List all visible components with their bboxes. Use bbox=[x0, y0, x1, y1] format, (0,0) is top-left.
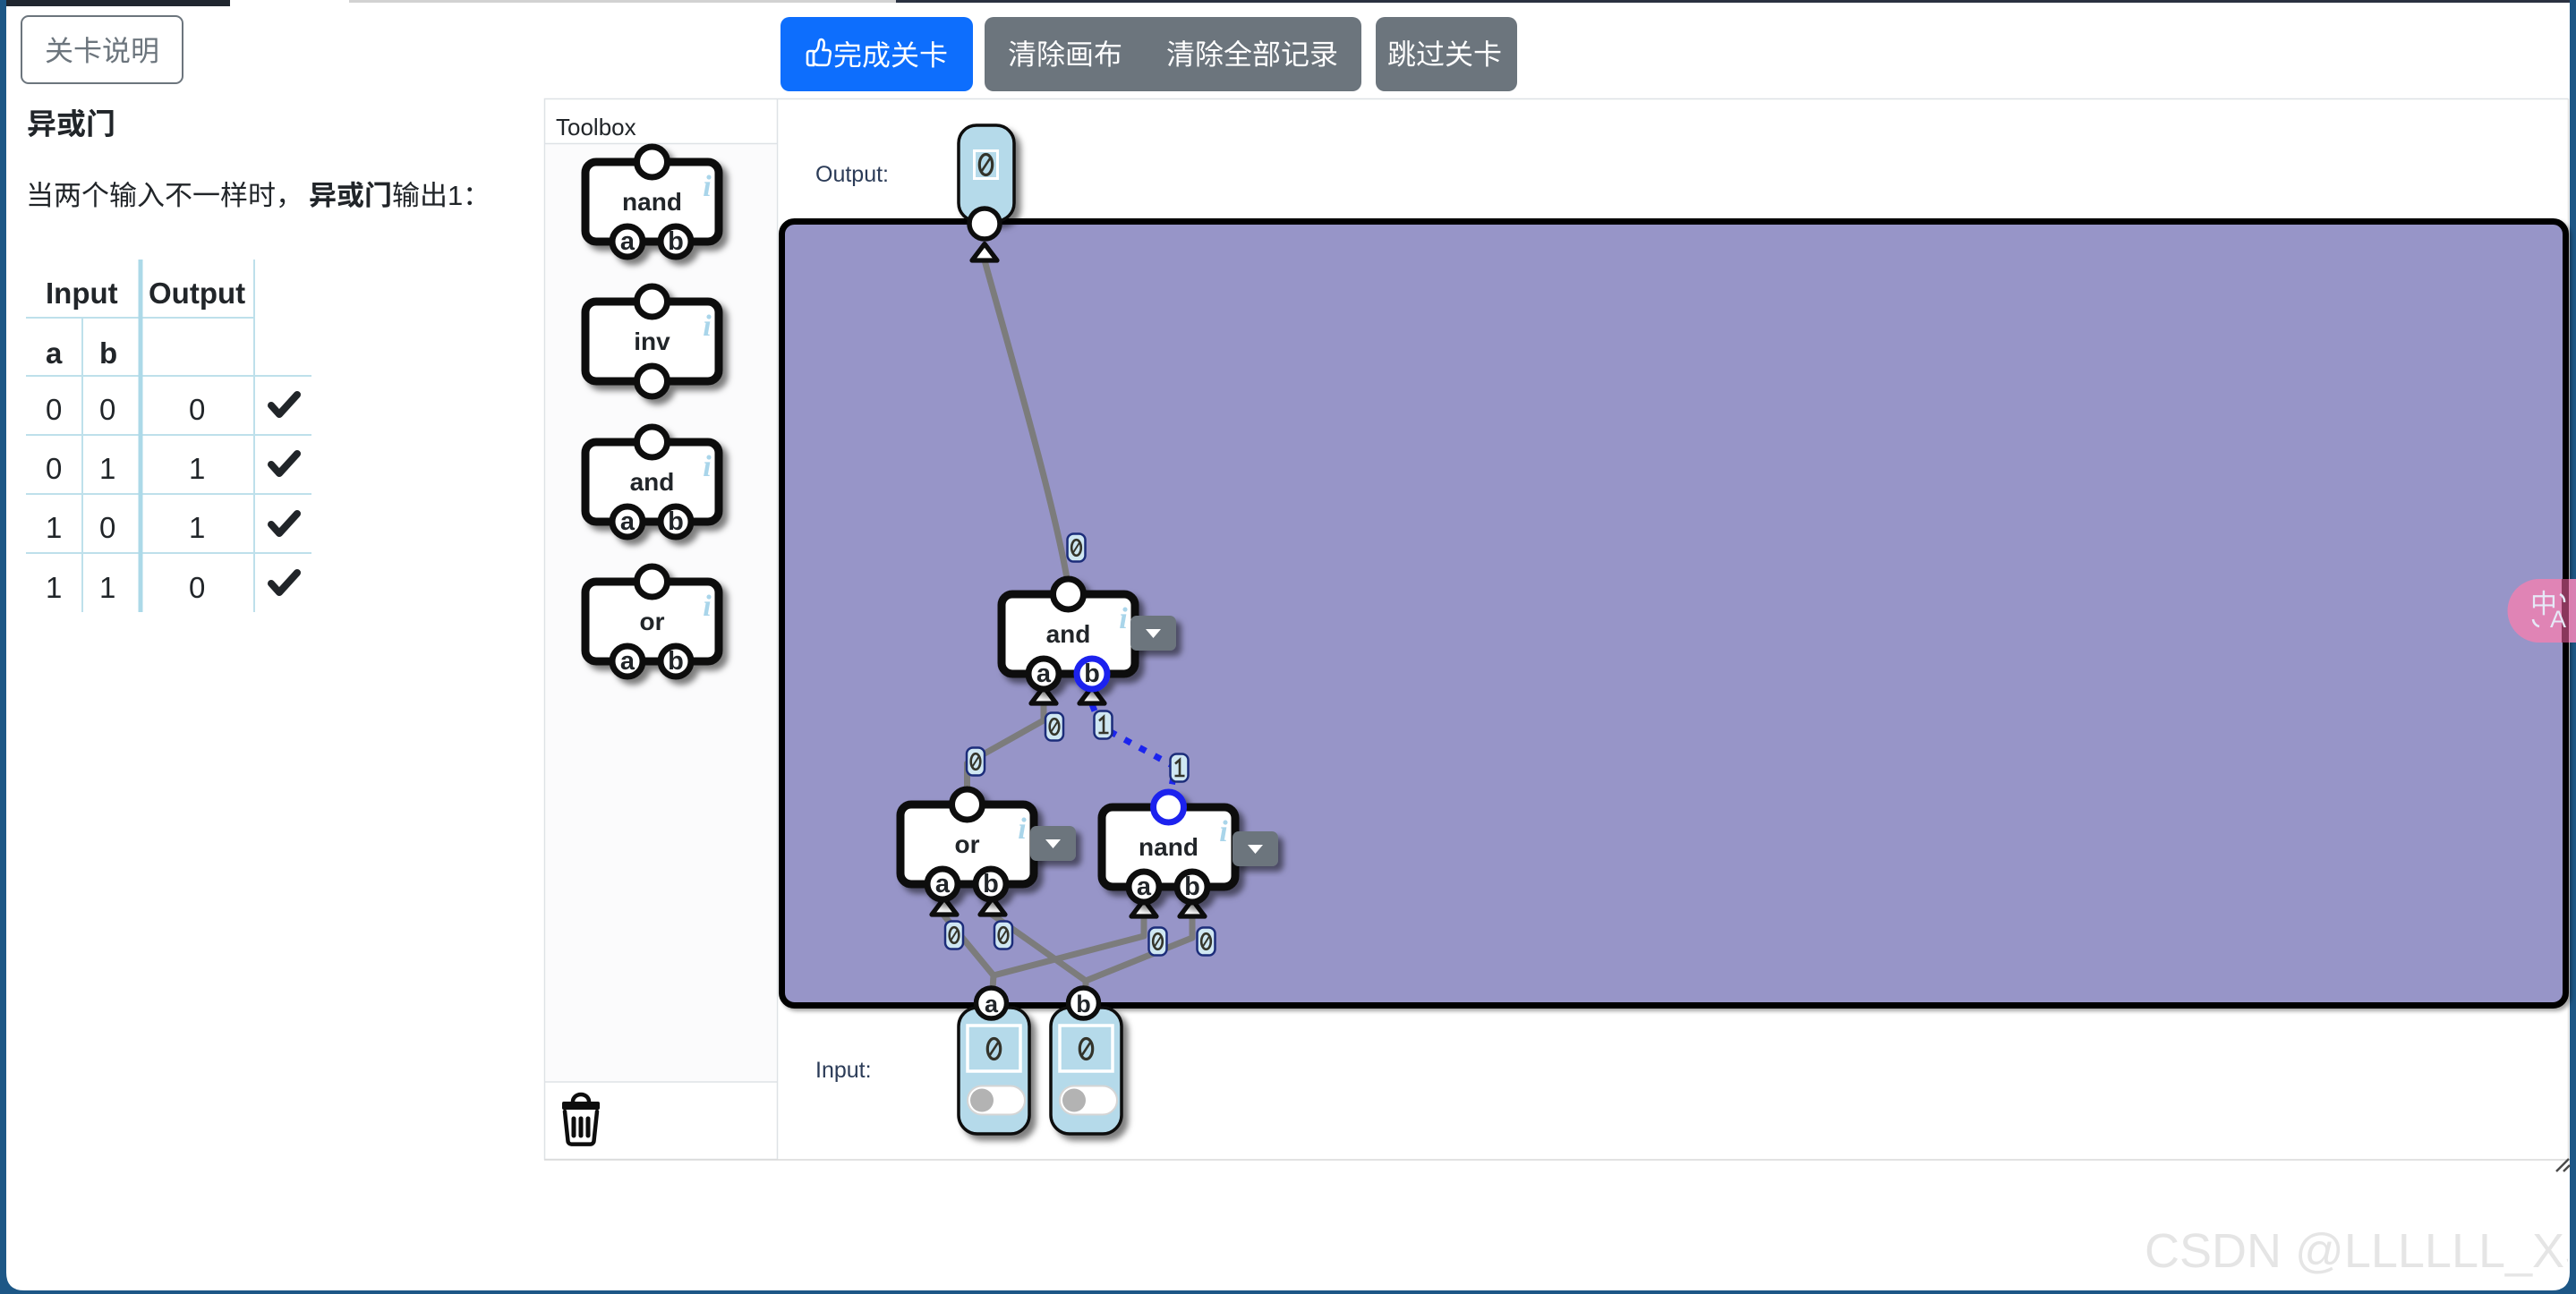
svg-text:1: 1 bbox=[46, 571, 62, 604]
svg-text:or: or bbox=[955, 830, 980, 858]
svg-text:0: 0 bbox=[46, 452, 62, 485]
svg-text:b: b bbox=[1076, 991, 1091, 1017]
svg-text:inv: inv bbox=[634, 328, 670, 355]
svg-text:0: 0 bbox=[46, 393, 62, 426]
svg-text:0: 0 bbox=[99, 393, 115, 426]
svg-text:Input:: Input: bbox=[815, 1058, 872, 1083]
svg-text:1: 1 bbox=[46, 511, 62, 544]
svg-text:0: 0 bbox=[189, 571, 205, 604]
svg-text:i: i bbox=[703, 590, 712, 623]
svg-text:i: i bbox=[703, 170, 712, 203]
svg-text:or: or bbox=[640, 608, 665, 635]
svg-text:CSDN @LLLLLL_XS: CSDN @LLLLLL_XS bbox=[2145, 1224, 2576, 1278]
svg-text:a: a bbox=[1036, 660, 1052, 688]
svg-text:i: i bbox=[1119, 602, 1128, 635]
svg-text:0: 0 bbox=[99, 511, 115, 544]
svg-text:a: a bbox=[46, 336, 63, 370]
svg-text:i: i bbox=[703, 310, 712, 343]
svg-text:Output:: Output: bbox=[815, 162, 889, 187]
svg-text:1: 1 bbox=[189, 511, 205, 544]
svg-text:nand: nand bbox=[1139, 833, 1198, 861]
svg-text:1: 1 bbox=[99, 571, 115, 604]
svg-text:b: b bbox=[1184, 873, 1200, 901]
svg-text:b: b bbox=[99, 336, 117, 370]
svg-text:and: and bbox=[1046, 620, 1091, 648]
svg-text:b: b bbox=[668, 647, 684, 676]
svg-text:and: and bbox=[630, 468, 675, 496]
svg-text:i: i bbox=[1219, 815, 1228, 848]
svg-text:1: 1 bbox=[99, 452, 115, 485]
svg-text:b: b bbox=[668, 227, 684, 256]
svg-text:Output: Output bbox=[149, 277, 245, 310]
svg-text:a: a bbox=[620, 227, 635, 256]
svg-text:a: a bbox=[620, 647, 635, 676]
svg-text:1: 1 bbox=[448, 180, 463, 211]
svg-text:b: b bbox=[1084, 660, 1100, 688]
svg-text:Toolbox: Toolbox bbox=[556, 114, 636, 140]
svg-text:A: A bbox=[2550, 606, 2566, 633]
svg-text:i: i bbox=[1018, 813, 1027, 846]
svg-text:b: b bbox=[983, 870, 999, 898]
svg-text:b: b bbox=[668, 507, 684, 536]
svg-text:a: a bbox=[1137, 873, 1152, 901]
svg-text:a: a bbox=[985, 991, 999, 1017]
svg-text:a: a bbox=[935, 870, 951, 898]
svg-text:nand: nand bbox=[622, 188, 682, 216]
svg-text:a: a bbox=[620, 507, 635, 536]
svg-text:Input: Input bbox=[46, 277, 118, 310]
svg-text:i: i bbox=[703, 450, 712, 483]
svg-text:0: 0 bbox=[189, 393, 205, 426]
svg-text:1: 1 bbox=[189, 452, 205, 485]
